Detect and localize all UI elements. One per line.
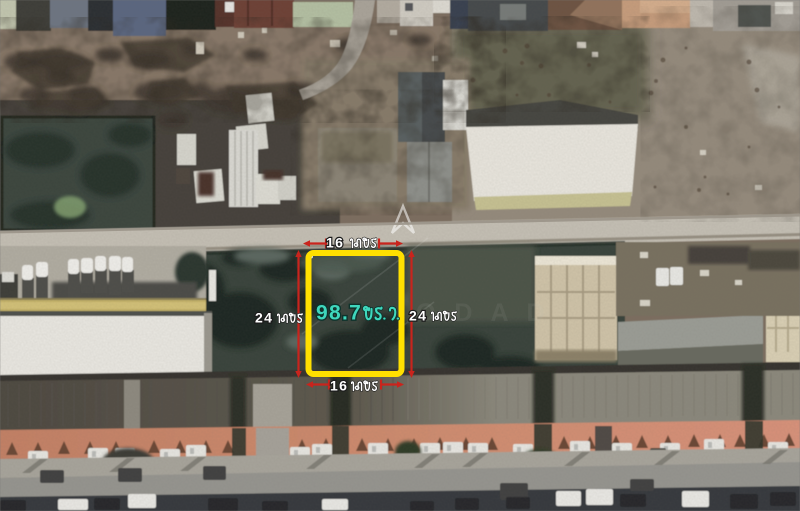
svg-text:24: 24 — [409, 308, 427, 324]
svg-text:24: 24 — [255, 310, 273, 326]
svg-text:16: 16 — [330, 378, 348, 394]
svg-text:O D A D: O D A D — [416, 299, 551, 327]
svg-text:16: 16 — [326, 235, 344, 251]
svg-text:98.7: 98.7 — [316, 302, 362, 325]
